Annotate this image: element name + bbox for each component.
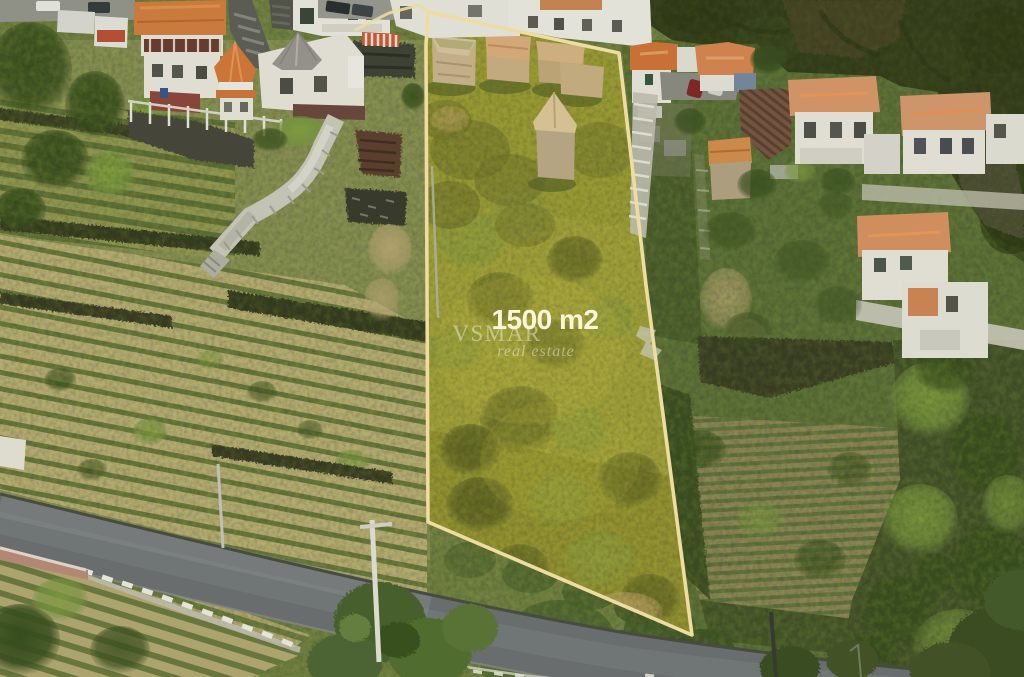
svg-text:1500 m2: 1500 m2	[491, 304, 598, 335]
svg-text:real estate: real estate	[497, 343, 575, 360]
